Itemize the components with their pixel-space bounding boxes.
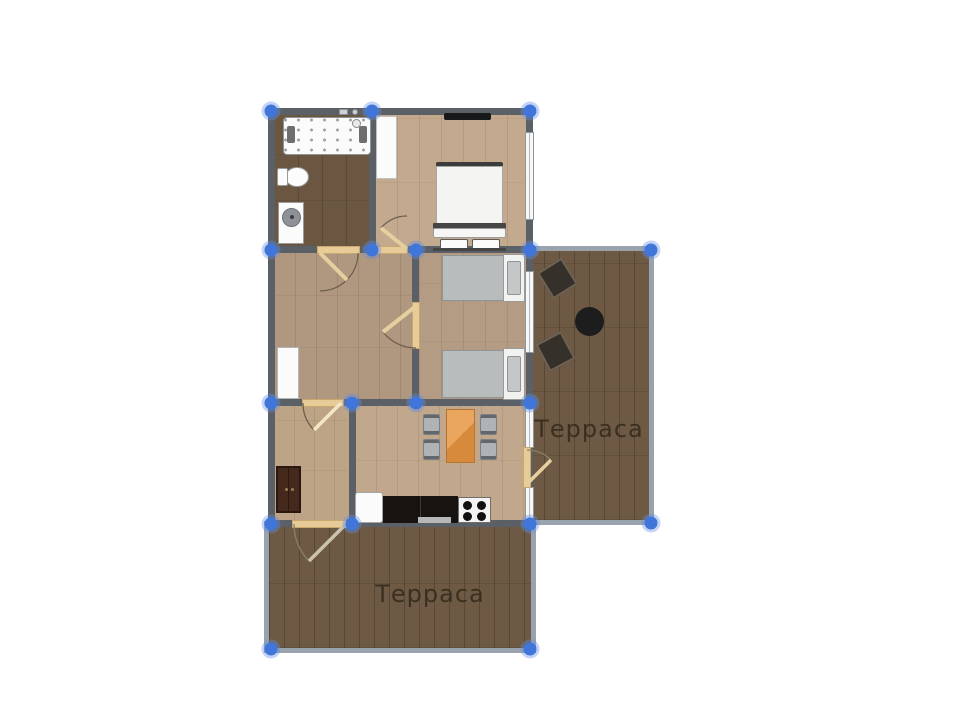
dining-chair[interactable] — [423, 439, 440, 460]
door-bedroom1-hall[interactable] — [374, 246, 408, 254]
dining-table[interactable] — [446, 409, 475, 463]
bathtub-grip-left — [287, 126, 295, 143]
selection-handle[interactable] — [346, 397, 359, 410]
closet-white[interactable] — [376, 116, 397, 179]
selection-handle[interactable] — [410, 397, 423, 410]
terrace-right-label: Терраса — [529, 415, 649, 443]
selection-handle[interactable] — [645, 517, 658, 530]
toilet[interactable] — [277, 167, 309, 187]
terrace-right-floor[interactable] — [529, 251, 649, 520]
dining-chair[interactable] — [480, 439, 497, 460]
selection-handle[interactable] — [410, 244, 423, 257]
dining-chair[interactable] — [423, 414, 440, 435]
wardrobe-white[interactable] — [277, 347, 299, 399]
bathtub-faucet — [352, 119, 361, 128]
wall-top[interactable] — [268, 108, 533, 115]
selection-handle[interactable] — [645, 244, 658, 257]
double-bed[interactable] — [433, 162, 506, 251]
selection-handle[interactable] — [265, 397, 278, 410]
single-bed-1[interactable] — [442, 254, 525, 302]
selection-handle[interactable] — [524, 105, 537, 118]
kitchen-counter[interactable] — [383, 496, 458, 523]
window-kitchen-lower[interactable] — [525, 487, 534, 521]
door-hall-entry[interactable] — [302, 399, 344, 407]
floor-plan-canvas: Терраса Терраса — [0, 0, 960, 720]
dining-chair[interactable] — [480, 414, 497, 435]
window-bedroom-1[interactable] — [525, 132, 534, 220]
wall-left[interactable] — [268, 108, 275, 527]
selection-handle[interactable] — [265, 518, 278, 531]
selection-handle[interactable] — [366, 244, 379, 257]
round-table[interactable] — [575, 307, 604, 336]
wall-tv[interactable] — [444, 113, 491, 120]
fridge[interactable] — [355, 492, 383, 523]
door-entry-terrace[interactable] — [292, 520, 348, 528]
selection-handle[interactable] — [524, 643, 537, 656]
window-bedroom-2[interactable] — [525, 271, 534, 353]
single-bed-2[interactable] — [442, 348, 525, 400]
shower-controls-icon — [352, 109, 358, 115]
sink-vanity[interactable] — [278, 202, 304, 244]
selection-handle[interactable] — [366, 105, 379, 118]
selection-handle[interactable] — [524, 397, 537, 410]
wardrobe-dark[interactable] — [276, 466, 301, 513]
shower-controls-icon — [339, 109, 348, 115]
selection-handle[interactable] — [346, 518, 359, 531]
terrace-bottom-label: Терраса — [300, 580, 560, 608]
door-bathroom-hall[interactable] — [317, 246, 360, 254]
door-kitchen-terrace[interactable] — [523, 447, 531, 488]
stove-4-burners[interactable] — [458, 497, 491, 523]
selection-handle[interactable] — [265, 244, 278, 257]
terrace-right[interactable] — [524, 246, 654, 525]
selection-handle[interactable] — [265, 105, 278, 118]
door-hall-bedroom2[interactable] — [412, 302, 420, 349]
selection-handle[interactable] — [524, 518, 537, 531]
selection-handle[interactable] — [265, 643, 278, 656]
bathtub-grip-right — [359, 126, 367, 143]
selection-handle[interactable] — [524, 244, 537, 257]
